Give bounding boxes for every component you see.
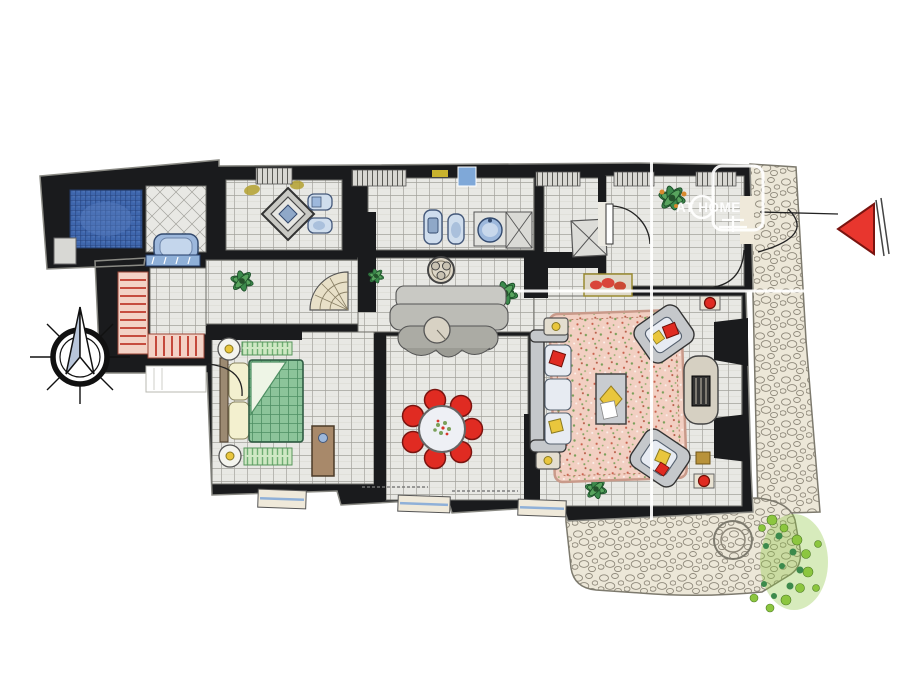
nightstand — [218, 338, 240, 360]
shower-pan — [506, 212, 532, 248]
sideboard — [584, 274, 632, 296]
toilet — [308, 194, 332, 210]
bed-mat — [244, 448, 292, 465]
double-bed — [220, 358, 303, 442]
washbasin — [474, 212, 506, 246]
curved-steps — [390, 286, 508, 357]
blue-window — [458, 167, 476, 186]
floor-plan-canvas: AT HOME — [0, 0, 900, 675]
coffee-table — [596, 374, 626, 424]
stair-flight-vertical — [118, 272, 148, 354]
gold-ornament — [696, 452, 710, 464]
wall-sconce — [700, 296, 720, 310]
sofa-cushion — [545, 379, 571, 410]
nightstand — [219, 445, 241, 467]
window — [256, 168, 292, 184]
wall-niche — [54, 238, 76, 264]
window — [518, 499, 567, 517]
window — [352, 170, 406, 186]
mosaic-glow — [80, 202, 132, 236]
watermark-brand: AT HOME — [676, 200, 741, 215]
pillow — [229, 363, 249, 400]
stair-window — [146, 255, 200, 266]
floor-plan-page: AT HOME — [0, 0, 900, 675]
window — [614, 172, 654, 186]
bed-mat — [242, 342, 292, 355]
wardrobe — [312, 426, 334, 476]
sofa — [530, 330, 571, 452]
stone-well — [714, 521, 752, 559]
yellow-mark — [432, 170, 448, 177]
toilet — [424, 210, 442, 244]
window — [258, 489, 307, 509]
side-table — [536, 452, 560, 469]
floor-medallion — [428, 257, 454, 283]
side-table — [544, 318, 568, 335]
stair-landing — [150, 268, 206, 334]
wall-sconce — [694, 474, 714, 488]
fireplace — [684, 356, 718, 424]
window — [398, 495, 451, 513]
window — [536, 172, 580, 186]
bidet — [308, 218, 332, 233]
pillow — [229, 402, 249, 439]
bidet — [448, 214, 464, 244]
window — [696, 172, 736, 186]
throw-pillow — [549, 419, 564, 434]
